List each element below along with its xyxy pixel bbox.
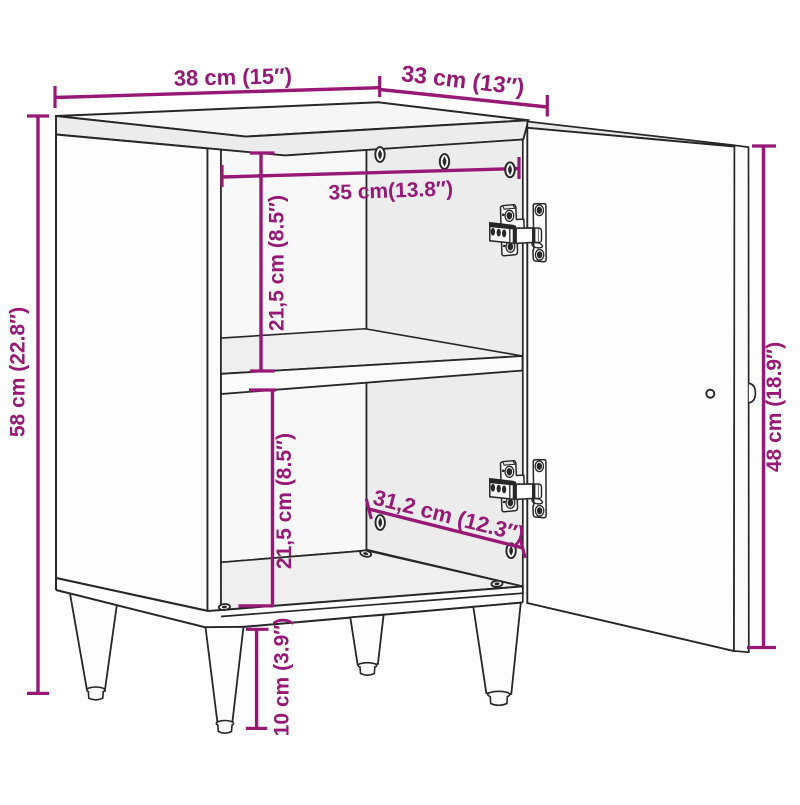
svg-text:38 cm (15″): 38 cm (15″) [174, 63, 293, 90]
svg-text:35 cm(13.8″): 35 cm(13.8″) [328, 177, 453, 204]
svg-text:10 cm (3.9″): 10 cm (3.9″) [271, 618, 294, 737]
svg-text:48 cm (18.9″): 48 cm (18.9″) [763, 342, 786, 472]
svg-text:21,5 cm (8.5″): 21,5 cm (8.5″) [266, 195, 289, 331]
svg-text:21,5 cm (8.5″): 21,5 cm (8.5″) [273, 433, 296, 569]
svg-text:58 cm (22.8″): 58 cm (22.8″) [7, 307, 30, 437]
